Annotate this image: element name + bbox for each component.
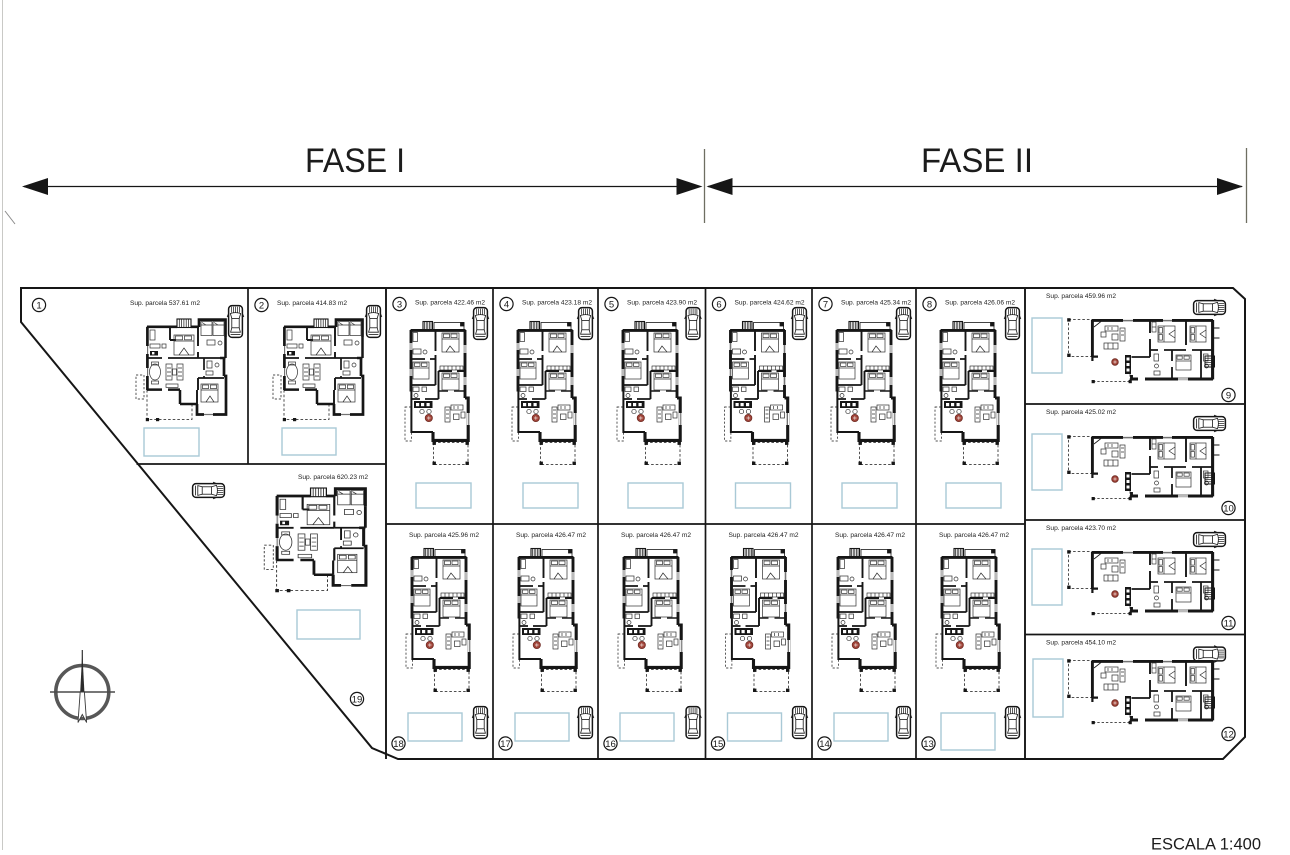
svg-text:Sup. parcela 425.34 m2: Sup. parcela 425.34 m2 xyxy=(841,300,911,307)
svg-text:Sup. parcela 424.62 m2: Sup. parcela 424.62 m2 xyxy=(734,300,804,307)
svg-text:Sup. parcela 423.70 m2: Sup. parcela 423.70 m2 xyxy=(1046,525,1116,532)
svg-text:Sup. parcela 423.18 m2: Sup. parcela 423.18 m2 xyxy=(522,300,592,307)
svg-text:Sup. parcela 537.61 m2: Sup. parcela 537.61 m2 xyxy=(130,300,200,307)
svg-text:14: 14 xyxy=(819,739,830,750)
svg-text:Sup. parcela 422.46 m2: Sup. parcela 422.46 m2 xyxy=(415,300,485,307)
svg-text:16: 16 xyxy=(605,739,616,750)
svg-text:FASE II: FASE II xyxy=(921,142,1033,180)
svg-text:18: 18 xyxy=(393,739,404,750)
svg-text:Sup. parcela 426.47 m2: Sup. parcela 426.47 m2 xyxy=(939,532,1009,539)
svg-text:10: 10 xyxy=(1223,503,1234,514)
svg-text:15: 15 xyxy=(713,739,724,750)
svg-text:4: 4 xyxy=(504,299,509,310)
svg-text:8: 8 xyxy=(927,299,932,310)
svg-text:1: 1 xyxy=(36,300,41,311)
svg-text:Sup. parcela 454.10 m2: Sup. parcela 454.10 m2 xyxy=(1046,640,1116,647)
svg-text:FASE I: FASE I xyxy=(305,142,405,180)
svg-text:Sup. parcela 459.96 m2: Sup. parcela 459.96 m2 xyxy=(1046,293,1116,300)
svg-text:12: 12 xyxy=(1223,729,1234,740)
svg-text:17: 17 xyxy=(500,739,511,750)
svg-text:2: 2 xyxy=(259,300,264,311)
svg-text:Sup. parcela 414.83 m2: Sup. parcela 414.83 m2 xyxy=(277,300,347,307)
svg-text:Sup. parcela 426.47 m2: Sup. parcela 426.47 m2 xyxy=(835,532,905,539)
svg-text:Sup. parcela 426.06 m2: Sup. parcela 426.06 m2 xyxy=(945,300,1015,307)
svg-text:Sup. parcela 426.47 m2: Sup. parcela 426.47 m2 xyxy=(621,532,691,539)
svg-text:3: 3 xyxy=(397,299,402,310)
svg-text:5: 5 xyxy=(609,299,614,310)
svg-text:6: 6 xyxy=(716,299,721,310)
svg-text:11: 11 xyxy=(1224,618,1234,629)
svg-text:19: 19 xyxy=(352,694,363,705)
svg-text:Sup. parcela 426.47 m2: Sup. parcela 426.47 m2 xyxy=(516,532,586,539)
svg-text:Sup. parcela 426.47 m2: Sup. parcela 426.47 m2 xyxy=(728,532,798,539)
svg-text:7: 7 xyxy=(823,299,828,310)
svg-text:Sup. parcela 620.23 m2: Sup. parcela 620.23 m2 xyxy=(298,474,368,481)
svg-text:Sup. parcela 425.96 m2: Sup. parcela 425.96 m2 xyxy=(409,532,479,539)
svg-text:Sup. parcela 425.02 m2: Sup. parcela 425.02 m2 xyxy=(1046,409,1116,416)
svg-text:ESCALA 1:400: ESCALA 1:400 xyxy=(1151,836,1261,851)
svg-text:13: 13 xyxy=(923,739,934,750)
svg-text:9: 9 xyxy=(1226,390,1231,401)
svg-text:Sup. parcela 423.90 m2: Sup. parcela 423.90 m2 xyxy=(627,300,697,307)
